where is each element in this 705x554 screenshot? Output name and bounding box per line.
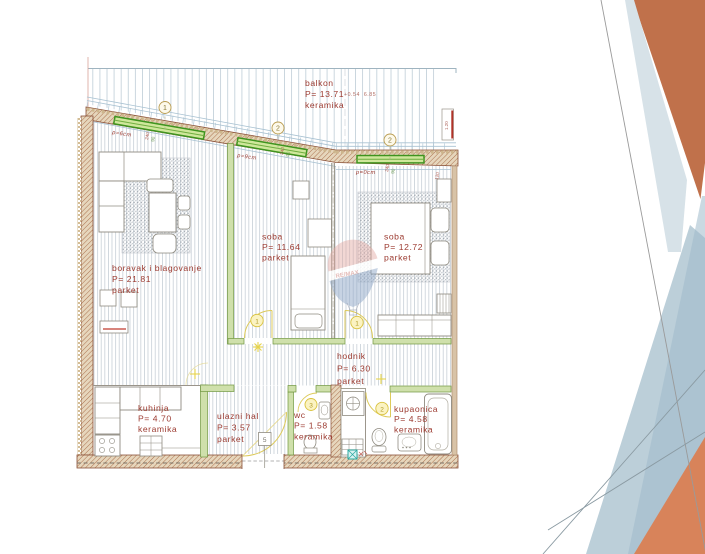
svg-text:2: 2 (388, 138, 392, 145)
svg-text:P= 12.72: P= 12.72 (384, 242, 423, 252)
svg-text:p=0cm: p=0cm (355, 170, 376, 176)
svg-text:P= 21.81: P= 21.81 (112, 274, 151, 284)
svg-text:keramika: keramika (294, 432, 333, 442)
svg-text:parket: parket (262, 253, 289, 263)
svg-text:+0.54 6.85: +0.54 6.85 (344, 92, 376, 98)
svg-text:ulazni hal: ulazni hal (217, 411, 259, 421)
svg-text:P= 4.70: P= 4.70 (138, 414, 172, 424)
svg-text:P= 1.58: P= 1.58 (294, 421, 328, 431)
svg-text:P= 3.57: P= 3.57 (217, 423, 251, 433)
svg-text:5: 5 (263, 437, 267, 444)
svg-text:kuhinja: kuhinja (138, 403, 169, 413)
svg-text:3: 3 (309, 402, 313, 409)
svg-text:wc: wc (293, 410, 306, 420)
svg-text:parket: parket (112, 285, 139, 295)
svg-text:1: 1 (255, 318, 259, 325)
svg-text:parket: parket (217, 434, 244, 444)
svg-text:parket: parket (337, 376, 364, 386)
svg-text:P= 11.64: P= 11.64 (262, 242, 300, 252)
svg-text:hodnik: hodnik (337, 351, 366, 361)
svg-text:1: 1 (163, 105, 167, 112)
svg-text:2: 2 (380, 406, 384, 413)
svg-text:balkon: balkon (305, 78, 334, 88)
svg-text:soba: soba (384, 232, 405, 242)
svg-text:keramika: keramika (394, 425, 433, 435)
svg-text:boravak i blagovanje: boravak i blagovanje (112, 263, 202, 273)
svg-text:keramika: keramika (305, 100, 344, 110)
svg-text:parket: parket (384, 253, 411, 263)
svg-text:1: 1 (355, 320, 359, 327)
svg-text:2: 2 (276, 126, 280, 133)
svg-text:soba: soba (262, 232, 283, 242)
svg-text:P= 13.71: P= 13.71 (305, 89, 344, 99)
svg-text:P= 4.58: P= 4.58 (394, 414, 428, 424)
svg-text:keramika: keramika (138, 424, 177, 434)
svg-text:kupaonica: kupaonica (394, 404, 438, 414)
svg-text:P= 6.30: P= 6.30 (337, 364, 371, 374)
svg-text:1.20: 1.20 (444, 121, 449, 130)
